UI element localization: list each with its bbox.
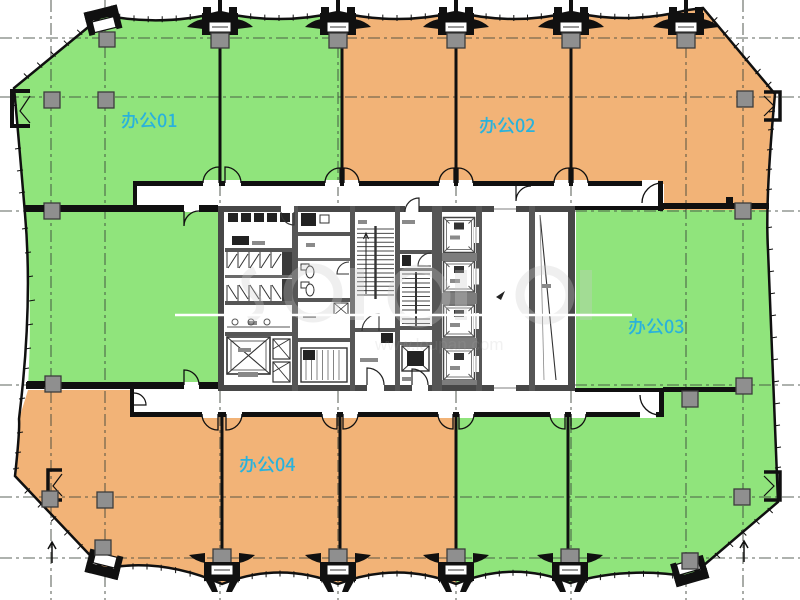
svg-text:www.loupan.com: www.loupan.com: [374, 335, 504, 354]
